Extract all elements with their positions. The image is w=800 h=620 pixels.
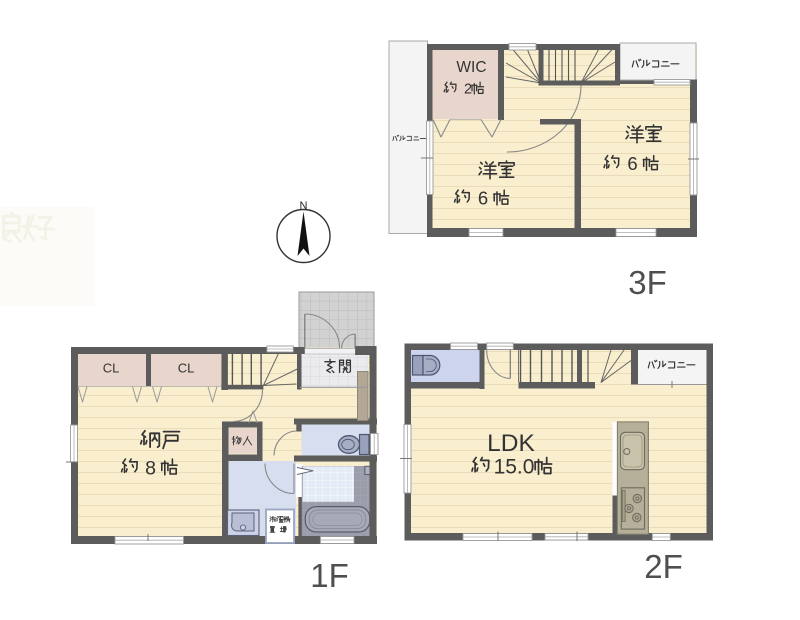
svg-text:8: 8 [145, 458, 156, 480]
svg-text:3F: 3F [628, 264, 667, 301]
svg-text:N: N [300, 200, 308, 212]
svg-text:6: 6 [627, 153, 637, 174]
svg-text:LDK: LDK [487, 430, 535, 457]
svg-text:CL: CL [178, 361, 195, 376]
svg-text:15.0: 15.0 [494, 456, 535, 479]
svg-text:2: 2 [464, 82, 472, 98]
svg-text:6: 6 [478, 188, 488, 209]
svg-text:1F: 1F [310, 557, 349, 594]
svg-text:2F: 2F [644, 548, 683, 585]
svg-text:WIC: WIC [456, 59, 486, 76]
svg-text:CL: CL [103, 361, 120, 376]
